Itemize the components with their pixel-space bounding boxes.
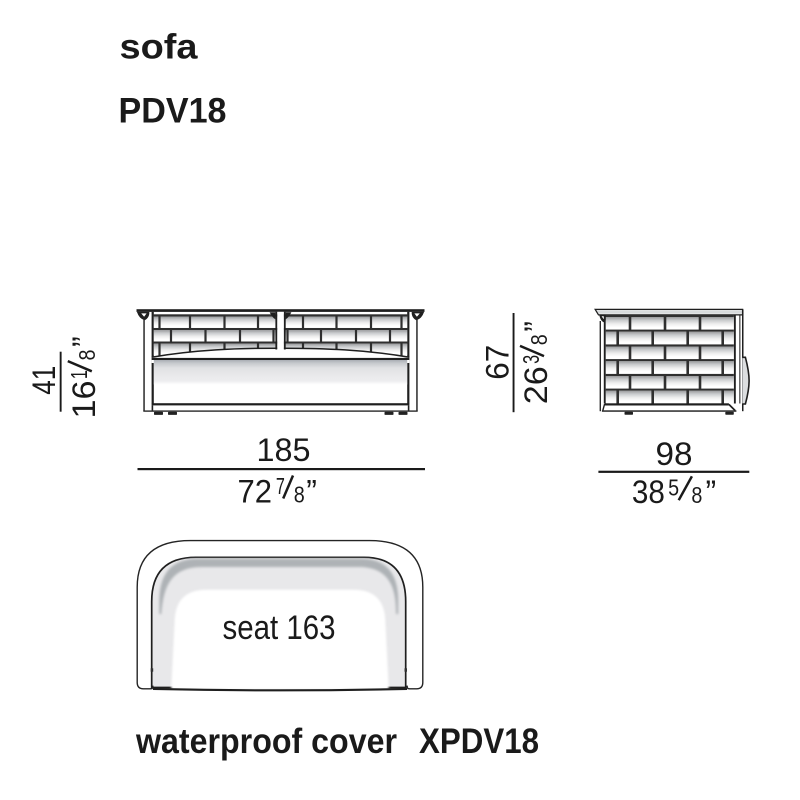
svg-text:PDV18: PDV18: [119, 92, 227, 131]
svg-text:5: 5: [668, 474, 679, 500]
svg-text:seat 163: seat 163: [223, 609, 336, 647]
svg-text:”: ”: [518, 321, 554, 332]
svg-text:41: 41: [26, 366, 62, 395]
svg-text:XPDV18: XPDV18: [419, 722, 539, 761]
svg-text:”: ”: [306, 474, 317, 510]
svg-text:8: 8: [526, 334, 552, 345]
svg-text:8: 8: [74, 350, 100, 361]
svg-text:8: 8: [691, 482, 702, 508]
svg-text:sofa: sofa: [120, 28, 199, 67]
svg-text:16: 16: [66, 381, 102, 419]
svg-text:98: 98: [656, 436, 693, 472]
svg-text:3: 3: [518, 355, 544, 364]
svg-text:38: 38: [632, 474, 665, 510]
svg-text:8: 8: [294, 482, 305, 508]
svg-text:67: 67: [480, 345, 516, 380]
svg-text:”: ”: [706, 474, 717, 510]
svg-text:1: 1: [66, 370, 92, 379]
svg-text:185: 185: [257, 432, 311, 468]
svg-text:”: ”: [66, 336, 102, 347]
svg-text:72: 72: [238, 474, 273, 510]
svg-text:26: 26: [518, 366, 554, 404]
svg-text:waterproof cover: waterproof cover: [135, 722, 397, 761]
